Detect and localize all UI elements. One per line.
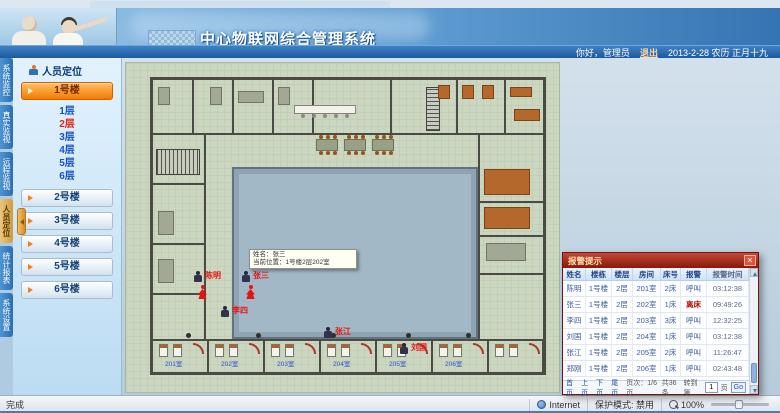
alarm-popup-title: 报警提示 bbox=[568, 255, 602, 267]
person-marker-label[interactable]: 陈明 bbox=[205, 272, 221, 280]
alarm-cell: 呼叫 bbox=[681, 361, 707, 377]
zoom-slider[interactable] bbox=[711, 403, 769, 406]
user-bar: 你好，管理员 退出 2013-2-28 农历 正月十九 bbox=[0, 45, 780, 58]
room-label: 204室 bbox=[333, 361, 350, 368]
scrollbar-thumb[interactable] bbox=[751, 363, 757, 383]
goto-page-input[interactable] bbox=[705, 382, 718, 393]
tab-live-view[interactable]: 真实监视 bbox=[0, 105, 13, 149]
scroll-down-icon[interactable] bbox=[750, 385, 758, 394]
bed-icon bbox=[215, 344, 224, 357]
magnifier-icon bbox=[669, 400, 678, 409]
alarm-table-row[interactable]: 张三1号楼2层202室1床离床09:49:26 bbox=[563, 297, 749, 313]
page-last-link[interactable]: 尾页 bbox=[611, 378, 623, 398]
alarm-person-icon[interactable] bbox=[246, 285, 255, 299]
wall bbox=[232, 80, 234, 133]
floor-item-2[interactable]: 2层 bbox=[13, 118, 121, 131]
furniture bbox=[438, 85, 450, 99]
bed-icon bbox=[159, 344, 168, 357]
alarm-cell: 郑刚 bbox=[563, 361, 586, 377]
zoom-segment: 100% bbox=[661, 399, 780, 411]
tab-personnel-location[interactable]: 人员定位 bbox=[0, 199, 13, 243]
alarm-table-row[interactable]: 张江1号楼2层205室2床呼叫11:26:47 bbox=[563, 345, 749, 361]
person-marker[interactable] bbox=[242, 271, 250, 282]
furniture bbox=[278, 87, 290, 105]
room-module: 204室 bbox=[321, 341, 377, 372]
wall bbox=[153, 243, 204, 245]
alarm-cell: 张三 bbox=[563, 297, 586, 313]
furniture bbox=[482, 85, 494, 99]
building-button-5[interactable]: 5号楼 bbox=[21, 258, 113, 276]
alarm-cell: 3床 bbox=[661, 313, 681, 329]
building-button-6[interactable]: 6号楼 bbox=[21, 281, 113, 299]
alarm-cell: 03:12:38 bbox=[707, 281, 749, 297]
alarm-cell: 11:26:47 bbox=[707, 345, 749, 361]
wall bbox=[480, 273, 544, 275]
room-module bbox=[489, 341, 544, 372]
door-arc bbox=[529, 343, 540, 354]
alarm-cell: 1号楼 bbox=[586, 313, 612, 329]
alarm-cell: 张江 bbox=[563, 345, 586, 361]
alarm-table-row[interactable]: 陈明1号楼2层201室2床呼叫03:12:38 bbox=[563, 281, 749, 297]
door-arc bbox=[473, 343, 484, 354]
furniture bbox=[462, 85, 474, 99]
furniture bbox=[484, 169, 530, 195]
bed-icon bbox=[453, 344, 462, 357]
alarm-cell: 离床 bbox=[681, 297, 707, 313]
goto-suffix: 页 bbox=[721, 383, 728, 393]
wall bbox=[504, 80, 506, 133]
bed-icon bbox=[495, 344, 504, 357]
alarm-table-row[interactable]: 郑刚1号楼2层206室1床呼叫02:43:48 bbox=[563, 361, 749, 377]
bed-icon bbox=[327, 344, 336, 357]
panel-title: 人员定位 bbox=[42, 63, 82, 78]
alarm-pagination: 首页 上页 下页 尾页 页次：1/6页 共36条 转到第 页 Go bbox=[563, 380, 749, 394]
protected-mode-label: 保护模式: 禁用 bbox=[595, 398, 654, 411]
person-marker[interactable] bbox=[400, 343, 408, 354]
alarm-cell: 1号楼 bbox=[586, 361, 612, 377]
alarm-cell: 1号楼 bbox=[586, 281, 612, 297]
alarm-cell: 1床 bbox=[661, 329, 681, 345]
person-marker[interactable] bbox=[324, 327, 332, 338]
alarm-table-row[interactable]: 刘国1号楼2层204室1床呼叫03:12:38 bbox=[563, 329, 749, 345]
alarm-cell: 刘国 bbox=[563, 329, 586, 345]
alarm-cell: 1号楼 bbox=[586, 345, 612, 361]
alarm-cell: 陈明 bbox=[563, 281, 586, 297]
alarm-column-header: 房间 bbox=[633, 268, 661, 281]
zoom-slider-thumb[interactable] bbox=[735, 400, 743, 409]
scroll-up-icon[interactable] bbox=[750, 268, 758, 277]
tab-remote-monitor[interactable]: 远程监视 bbox=[0, 152, 13, 196]
stairs bbox=[156, 149, 200, 175]
alarm-cell: 呼叫 bbox=[681, 329, 707, 345]
close-icon[interactable]: ✕ bbox=[744, 255, 756, 266]
tooltip-location-line: 当前位置：1号楼2层202室 bbox=[253, 259, 353, 267]
alarm-column-header: 楼层 bbox=[612, 268, 633, 281]
vertical-tab-strip: 系统监控 真实监视 远程监视 人员定位 统计报表 系统设置 bbox=[0, 58, 13, 395]
browser-tab-remnant bbox=[90, 1, 390, 8]
alarm-cell: 203室 bbox=[633, 313, 661, 329]
room-label: 201室 bbox=[165, 361, 182, 368]
bed-icon bbox=[509, 344, 518, 357]
door-arc bbox=[361, 343, 372, 354]
photo-shape bbox=[74, 17, 108, 31]
zoom-level: 100% bbox=[681, 400, 704, 410]
popup-scrollbar[interactable] bbox=[749, 268, 758, 394]
panel-collapse-handle[interactable] bbox=[17, 208, 26, 235]
alarm-cell: 206室 bbox=[633, 361, 661, 377]
page-next-link[interactable]: 下页 bbox=[596, 378, 608, 398]
alarm-popup: 报警提示 ✕ 姓名楼栋楼层房间床号报警报警时间陈明1号楼2层201室2床呼叫03… bbox=[562, 252, 759, 395]
building-button-1[interactable]: 1号楼 bbox=[21, 82, 113, 100]
alarm-cell: 李四 bbox=[563, 313, 586, 329]
bed-icon bbox=[383, 344, 392, 357]
alarm-person-icon[interactable] bbox=[198, 285, 207, 299]
greeting-text: 你好，管理员 bbox=[576, 46, 630, 59]
room-label: 205室 bbox=[389, 361, 406, 368]
furniture bbox=[158, 259, 174, 283]
room-label: 206室 bbox=[445, 361, 462, 368]
alarm-cell: 呼叫 bbox=[681, 281, 707, 297]
alarm-popup-titlebar[interactable]: 报警提示 ✕ bbox=[563, 253, 758, 268]
alarm-cell: 2层 bbox=[612, 345, 633, 361]
furniture bbox=[510, 87, 532, 97]
alarm-cell: 12:32:25 bbox=[707, 313, 749, 329]
bed-icon bbox=[285, 344, 294, 357]
person-marker-label[interactable]: 张江 bbox=[335, 328, 351, 336]
tab-system-monitor[interactable]: 系统监控 bbox=[0, 58, 13, 102]
bed-icon bbox=[439, 344, 448, 357]
table-row-furniture bbox=[294, 105, 356, 114]
alarm-cell: 2床 bbox=[661, 345, 681, 361]
person-marker[interactable] bbox=[194, 271, 202, 282]
go-button[interactable]: Go bbox=[731, 382, 746, 393]
furniture bbox=[514, 109, 540, 121]
wall bbox=[192, 80, 194, 133]
date-text: 2013-2-28 农历 正月十九 bbox=[668, 46, 768, 59]
alarm-cell: 呼叫 bbox=[681, 313, 707, 329]
person-tooltip: 姓名：张三 当前位置：1号楼2层202室 bbox=[249, 249, 357, 269]
alarm-cell: 09:49:26 bbox=[707, 297, 749, 313]
alarm-column-header: 报警时间 bbox=[707, 268, 749, 281]
floor-item-6[interactable]: 6层 bbox=[13, 170, 121, 183]
person-marker-label[interactable]: 李四 bbox=[232, 307, 248, 315]
person-icon bbox=[29, 65, 38, 76]
floor-item-5[interactable]: 5层 bbox=[13, 157, 121, 170]
page-prev-link[interactable]: 上页 bbox=[581, 378, 593, 398]
room-label: 203室 bbox=[277, 361, 294, 368]
alarm-cell: 03:12:38 bbox=[707, 329, 749, 345]
status-text: 完成 bbox=[0, 398, 529, 411]
alarm-cell: 1号楼 bbox=[586, 297, 612, 313]
building-button-3[interactable]: 3号楼 bbox=[21, 212, 113, 230]
wall bbox=[480, 235, 544, 237]
floor-list: 1层 2层 3层 4层 5层 6层 bbox=[13, 105, 121, 183]
furniture bbox=[210, 87, 222, 105]
alarm-table-body: 姓名楼栋楼层房间床号报警报警时间陈明1号楼2层201室2床呼叫03:12:38张… bbox=[563, 268, 749, 380]
column bbox=[406, 333, 411, 338]
dining-table bbox=[316, 139, 338, 151]
goto-prefix: 转到第 bbox=[684, 378, 702, 398]
alarm-cell: 201室 bbox=[633, 281, 661, 297]
tab-reports[interactable]: 统计报表 bbox=[0, 246, 13, 290]
zone-segment: Internet bbox=[529, 399, 587, 411]
person-marker-label[interactable]: 刘国 bbox=[411, 344, 427, 352]
alarm-column-header: 床号 bbox=[661, 268, 681, 281]
door-arc bbox=[305, 343, 316, 354]
furniture bbox=[486, 243, 526, 261]
wall bbox=[456, 80, 458, 133]
protected-mode-segment: 保护模式: 禁用 bbox=[587, 399, 661, 411]
wall bbox=[272, 80, 274, 133]
building-button-4[interactable]: 4号楼 bbox=[21, 235, 113, 253]
alarm-cell: 2床 bbox=[661, 281, 681, 297]
floor-plan[interactable]: 201室 202室 203室 204室 205室 206室 陈明 张三 bbox=[125, 62, 560, 393]
alarm-cell: 02:43:48 bbox=[707, 361, 749, 377]
wall bbox=[153, 293, 204, 295]
alarm-cell: 2层 bbox=[612, 329, 633, 345]
total-count: 共36条 bbox=[662, 378, 681, 398]
wall bbox=[480, 201, 544, 203]
alarm-table-header: 姓名楼栋楼层房间床号报警报警时间 bbox=[563, 268, 749, 281]
wall bbox=[153, 183, 204, 185]
alarm-cell: 1床 bbox=[661, 297, 681, 313]
door-arc bbox=[193, 343, 204, 354]
furniture bbox=[158, 211, 174, 235]
logout-link[interactable]: 退出 bbox=[640, 46, 658, 59]
bed-icon bbox=[173, 344, 182, 357]
tab-settings[interactable]: 系统设置 bbox=[0, 293, 13, 337]
furniture bbox=[238, 91, 264, 103]
alarm-column-header: 姓名 bbox=[563, 268, 586, 281]
furniture bbox=[158, 87, 170, 105]
floor-item-1[interactable]: 1层 bbox=[13, 105, 121, 118]
photo-shape bbox=[62, 20, 76, 34]
bed-icon bbox=[229, 344, 238, 357]
floor-item-4[interactable]: 4层 bbox=[13, 144, 121, 157]
room-module: 206室 bbox=[433, 341, 489, 372]
bed-icon bbox=[341, 344, 350, 357]
wall bbox=[390, 80, 392, 133]
alarm-column-header: 楼栋 bbox=[586, 268, 612, 281]
door-arc bbox=[249, 343, 260, 354]
photo-shape bbox=[22, 17, 37, 32]
alarm-column-header: 报警 bbox=[681, 268, 707, 281]
alarm-cell: 1床 bbox=[661, 361, 681, 377]
alarm-cell: 2层 bbox=[612, 313, 633, 329]
furniture bbox=[484, 207, 530, 229]
alarm-cell: 2层 bbox=[612, 361, 633, 377]
wall bbox=[478, 133, 480, 341]
column bbox=[256, 333, 261, 338]
column bbox=[466, 333, 471, 338]
room-module: 203室 bbox=[265, 341, 321, 372]
header-banner: 中心物联网综合管理系统 bbox=[0, 8, 780, 45]
person-marker-label[interactable]: 张三 bbox=[253, 272, 269, 280]
alarm-cell: 202室 bbox=[633, 297, 661, 313]
alarm-cell: 呼叫 bbox=[681, 345, 707, 361]
page-first-link[interactable]: 首页 bbox=[566, 378, 578, 398]
page-info: 页次：1/6页 bbox=[626, 378, 659, 398]
person-marker[interactable] bbox=[221, 306, 229, 317]
room-label: 202室 bbox=[221, 361, 238, 368]
zone-label: Internet bbox=[549, 400, 580, 410]
alarm-cell: 204室 bbox=[633, 329, 661, 345]
wall bbox=[204, 133, 206, 341]
bed-icon bbox=[271, 344, 280, 357]
alarm-cell: 2层 bbox=[612, 281, 633, 297]
sidebar-panel: 人员定位 1号楼 1层 2层 3层 4层 5层 6层 2号楼 3号楼 4号楼 5… bbox=[13, 58, 122, 395]
floor-item-3[interactable]: 3层 bbox=[13, 131, 121, 144]
panel-header: 人员定位 bbox=[13, 58, 121, 82]
dining-table bbox=[372, 139, 394, 151]
dining-table bbox=[344, 139, 366, 151]
room-module: 201室 bbox=[153, 341, 209, 372]
alarm-cell: 2层 bbox=[612, 297, 633, 313]
alarm-cell: 1号楼 bbox=[586, 329, 612, 345]
alarm-table-row[interactable]: 李四1号楼2层203室3床呼叫12:32:25 bbox=[563, 313, 749, 329]
alarm-cell: 205室 bbox=[633, 345, 661, 361]
tooltip-name-line: 姓名：张三 bbox=[253, 251, 353, 259]
globe-icon bbox=[537, 400, 546, 409]
building-button-2[interactable]: 2号楼 bbox=[21, 189, 113, 207]
room-module: 202室 bbox=[209, 341, 265, 372]
column bbox=[186, 333, 191, 338]
